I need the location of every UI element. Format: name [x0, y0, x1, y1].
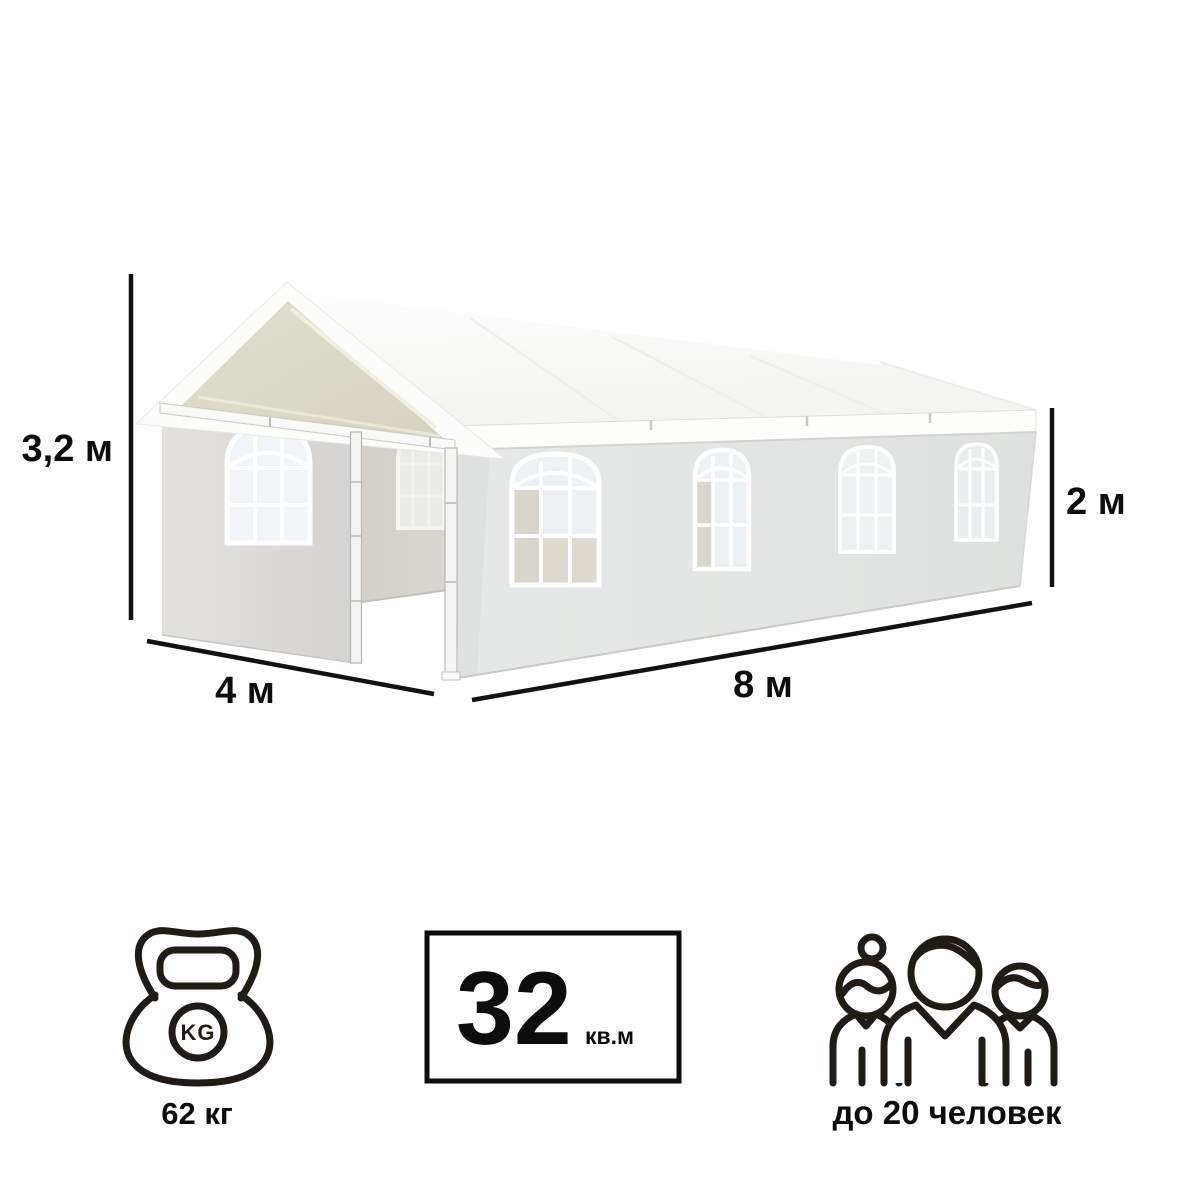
length-dimension-label: 8 м: [733, 664, 793, 706]
capacity-label: до 20 человек: [832, 1094, 1062, 1131]
tent-corner-pole: [442, 448, 460, 680]
front-window: [227, 427, 310, 543]
side-window-1: [512, 454, 599, 585]
pole: [445, 448, 457, 678]
kettlebell-kg-text: KG: [181, 1020, 216, 1045]
side-window-2: [695, 450, 749, 569]
side-window-4: [956, 444, 997, 540]
man-right-head: [995, 966, 1045, 1016]
tent-center-pole: [351, 432, 362, 663]
area-unit: кв.м: [585, 1023, 634, 1049]
width-dimension-label: 4 м: [215, 670, 275, 712]
kettlebell-icon: [126, 931, 270, 1083]
people-icon: [833, 937, 1054, 1083]
weight-label: 62 кг: [161, 1096, 233, 1131]
height-dimension-label: 3,2 м: [22, 428, 114, 470]
side-window-3: [840, 447, 894, 552]
person-man-center: [884, 939, 1006, 1083]
spec-area: 32 кв.м: [427, 933, 679, 1081]
product-infographic: 3,2 м 4 м 8 м 2 м KG 62 кг 32 кв.м: [0, 0, 1200, 1200]
woman-bun: [861, 937, 883, 959]
pole-foot: [442, 672, 460, 680]
kettlebell-handle-hole: [160, 950, 236, 986]
tent-illustration: [136, 282, 1036, 680]
spec-weight: KG 62 кг: [126, 931, 270, 1131]
pole: [351, 432, 362, 663]
side-height-dimension-label: 2 м: [1066, 481, 1126, 523]
man-center-torso: [884, 1005, 1006, 1083]
tent-infographic-svg: 3,2 м 4 м 8 м 2 м KG 62 кг 32 кв.м: [0, 0, 1200, 1200]
window-panes: [227, 427, 310, 543]
area-value: 32: [456, 951, 572, 1067]
spec-capacity: до 20 человек: [832, 937, 1062, 1131]
